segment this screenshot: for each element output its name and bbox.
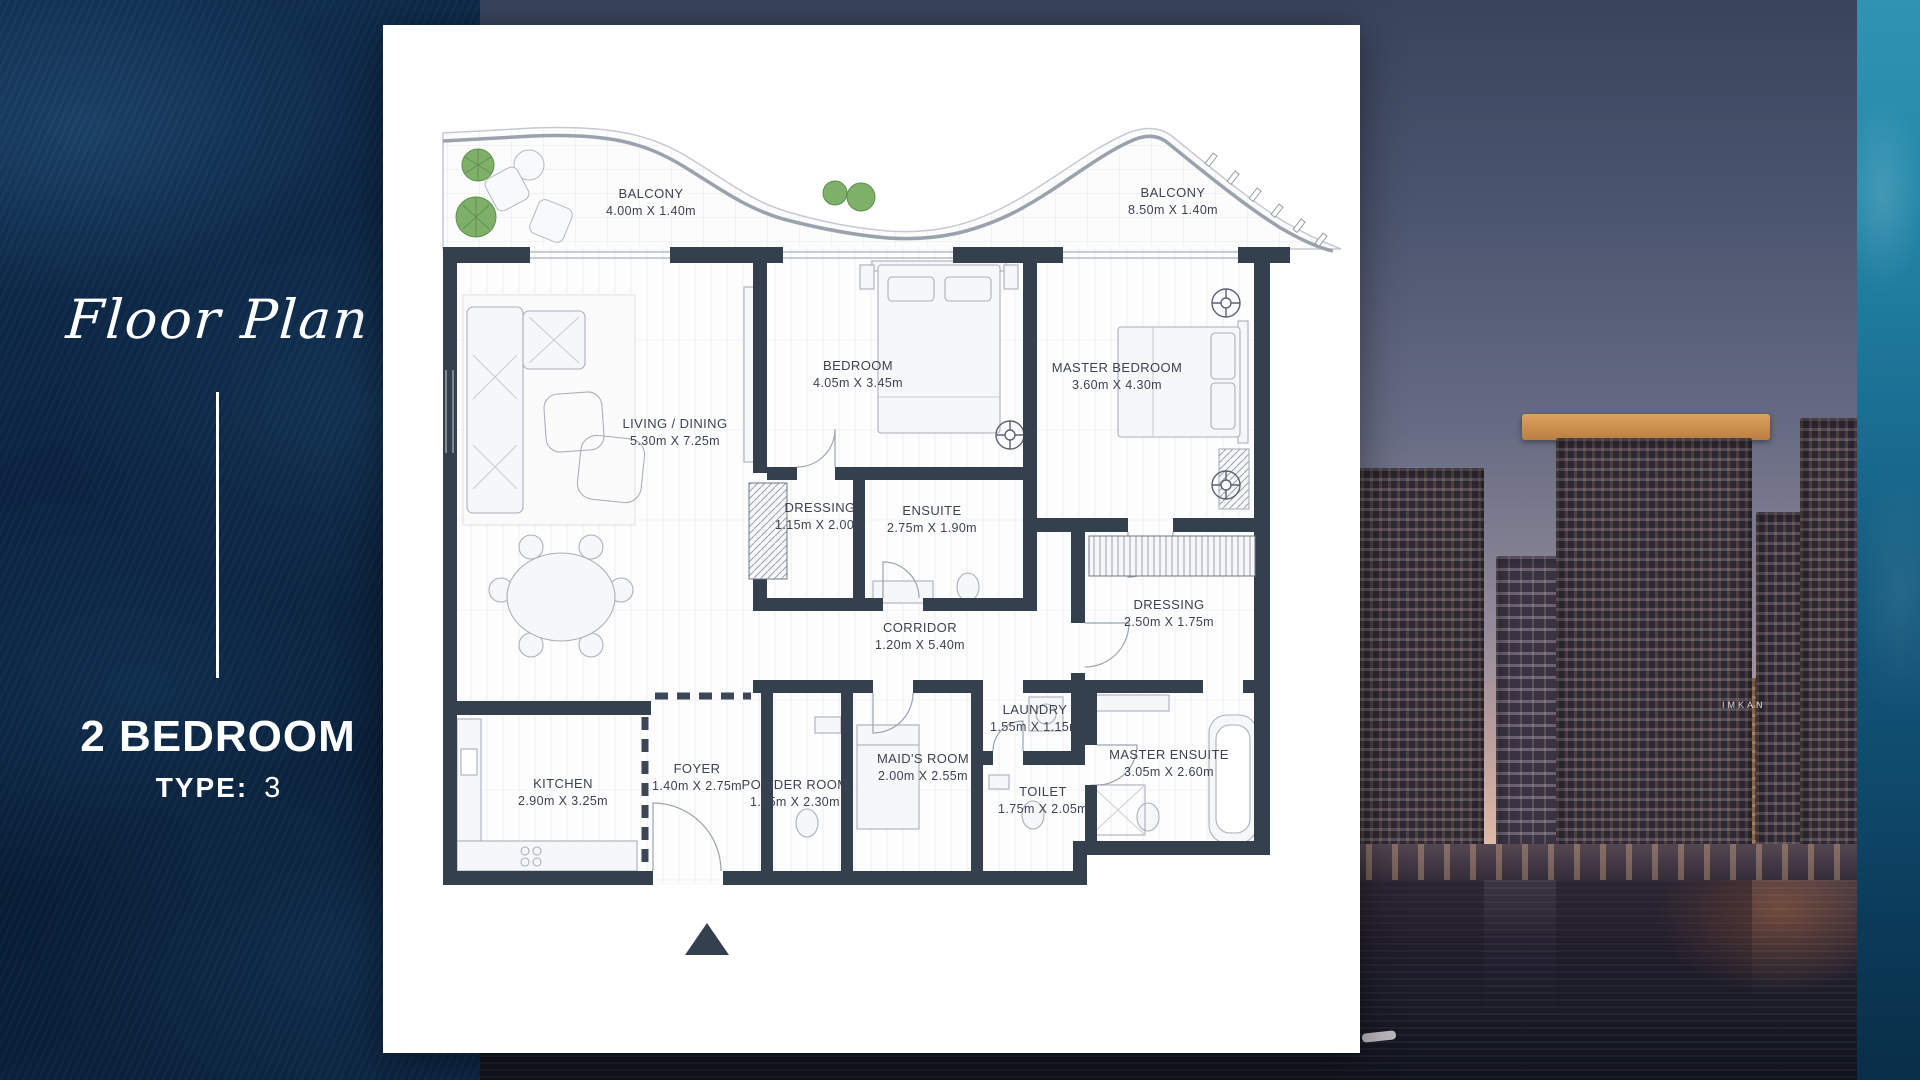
vertical-divider <box>216 392 219 678</box>
room-label-foyer: FOYER 1.40m X 2.75m <box>652 760 742 796</box>
room-label-master-bedroom: MASTER BEDROOM 3.60m X 4.30m <box>1052 359 1183 395</box>
room-label-living-dining: LIVING / DINING 5.30m X 7.25m <box>623 415 728 451</box>
tower-roof-cap <box>1522 414 1770 440</box>
teal-water-texture <box>1857 0 1920 1080</box>
room-label-toilet: TOILET 1.75m X 2.05m <box>998 783 1088 819</box>
tower-left <box>1352 468 1484 880</box>
tower-center <box>1556 438 1752 880</box>
page: IMKAN Floor Plan 2 BEDROOM TYPE:3 <box>0 0 1920 1080</box>
room-label-master-ensuite: MASTER ENSUITE 3.05m X 2.60m <box>1109 746 1229 782</box>
type-line: TYPE:3 <box>38 772 398 805</box>
unit-type-heading: 2 BEDROOM <box>38 712 398 762</box>
type-label: TYPE: <box>156 772 248 803</box>
tower-far-right <box>1800 418 1857 880</box>
tower-reflection <box>1556 880 1752 1050</box>
room-label-maids-room: MAID'S ROOM 2.00m X 2.55m <box>877 750 969 786</box>
room-label-ensuite: ENSUITE 2.75m X 1.90m <box>887 502 977 538</box>
type-value: 3 <box>264 772 280 804</box>
room-label-laundry: LAUNDRY 1.55m X 1.15m <box>990 701 1080 737</box>
floor-plan-card: BALCONY 4.00m X 1.40m BALCONY 8.50m X 1.… <box>383 25 1360 1053</box>
waterfront-podium <box>1340 844 1857 882</box>
tower-sign-text: IMKAN <box>1722 700 1766 710</box>
room-label-bedroom: BEDROOM 4.05m X 3.45m <box>813 357 903 393</box>
entrance-arrow-icon <box>685 923 729 955</box>
room-label-dressing-2: DRESSING 2.50m X 1.75m <box>1124 596 1214 632</box>
room-label-powder-room: POWDER ROOM 1.65m X 2.30m <box>742 776 849 812</box>
room-label-kitchen: KITCHEN 2.90m X 3.25m <box>518 775 608 811</box>
tower-reflection <box>1352 880 1484 1050</box>
room-label-balcony-right: BALCONY 8.50m X 1.40m <box>1128 184 1218 220</box>
room-label-dressing-1: DRESSING 1.15m X 2.00m <box>775 499 865 535</box>
floor-plan-drawing <box>383 25 1360 1053</box>
floor-plan-script-title: Floor Plan <box>60 288 376 351</box>
room-label-corridor: CORRIDOR 1.20m X 5.40m <box>875 619 965 655</box>
room-label-balcony-left: BALCONY 4.00m X 1.40m <box>606 185 696 221</box>
